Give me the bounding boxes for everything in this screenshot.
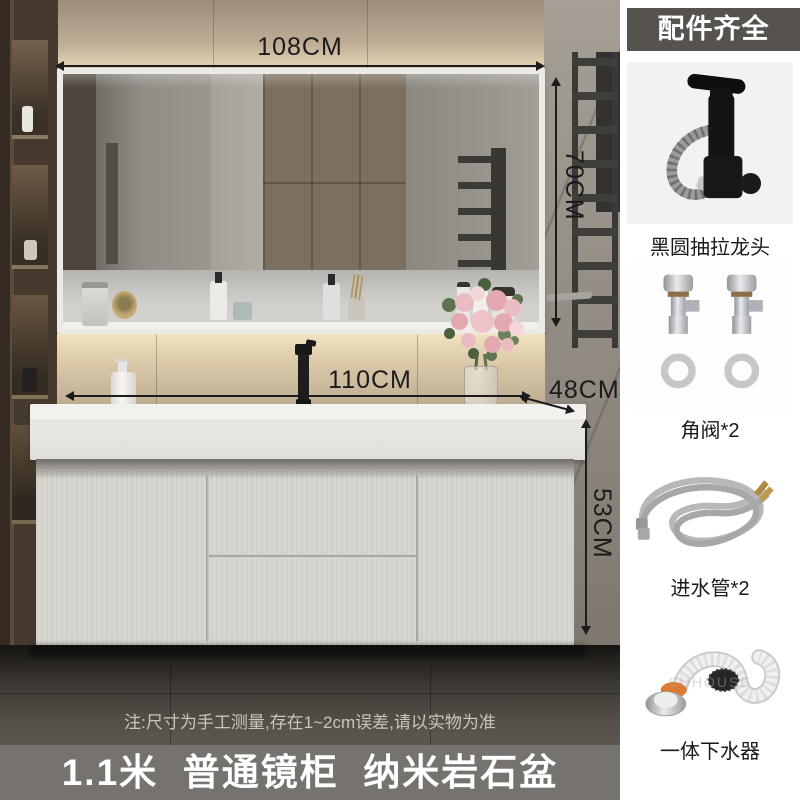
pump-bottle (323, 283, 340, 320)
mirror-glass (63, 74, 539, 270)
pump-top (215, 272, 222, 283)
dim-line-counter-width (67, 395, 529, 397)
pump-top (328, 274, 335, 285)
reflected-radiator-rail (491, 148, 505, 270)
accessory-image-angle-valves (630, 262, 790, 410)
toiletry-bottle (22, 106, 33, 132)
faucet-illustration (627, 62, 793, 224)
valve (663, 275, 699, 334)
pump-bottle (210, 281, 227, 320)
reflected-wood-panels (263, 74, 406, 270)
angle-valve-illustration (630, 262, 790, 410)
inlet-hose-illustration (626, 468, 794, 568)
soap-dispenser (110, 358, 140, 408)
bathroom-scene: 注:尺寸为手工测量,存在1~2cm误差,请以实物为准 108CM 70CM 11… (0, 0, 620, 745)
accessory-image-inlet-hoses (626, 468, 794, 568)
accessory-label-faucet: 黑圆抽拉龙头 (620, 231, 800, 260)
dim-label-mirror-height: 70CM (559, 150, 588, 221)
dim-line-mirror-height (555, 79, 557, 325)
accessories-header: 配件齐全 (627, 8, 800, 51)
vanity-cabinet (36, 471, 574, 648)
drawer-gap (209, 555, 416, 559)
vanity-countertop (30, 404, 586, 460)
perfume-bottle (82, 282, 108, 326)
accessory-label-inlet-hoses: 进水管*2 (620, 572, 800, 601)
reed-diffuser (348, 297, 365, 320)
dim-label-mirror-width: 108CM (57, 33, 543, 62)
cosmetic-jar (233, 302, 252, 320)
accessory-image-drain: SUHOUSE (628, 630, 792, 732)
photo-watermark: SUHOUSE (628, 674, 792, 690)
dim-label-counter-depth: 48CM (549, 376, 620, 405)
accessory-label-angle-valves: 角阀*2 (620, 414, 800, 443)
measurement-note: 注:尺寸为手工测量,存在1~2cm误差,请以实物为准 (0, 708, 620, 733)
brush-cup (22, 368, 37, 392)
dim-label-counter-width: 110CM (240, 366, 500, 395)
door-seam (416, 475, 419, 641)
reflected-door-handle (106, 143, 118, 265)
accessory-label-drain: 一体下水器 (620, 735, 800, 764)
dim-label-cabinet-height: 53CM (587, 488, 616, 559)
product-image: 注:尺寸为手工测量,存在1~2cm误差,请以实物为准 108CM 70CM 11… (0, 0, 800, 800)
accessories-panel: 配件齐全 黑圆抽拉龙头 (620, 0, 800, 800)
dim-line-mirror-width (57, 65, 543, 67)
title-banner: 1.1米 普通镜柜 纳米岩石盆 (0, 745, 620, 800)
accessory-image-faucet (627, 62, 793, 224)
perfume-bottle (24, 240, 37, 260)
valve (727, 275, 763, 334)
perfume-bottle (112, 291, 137, 319)
